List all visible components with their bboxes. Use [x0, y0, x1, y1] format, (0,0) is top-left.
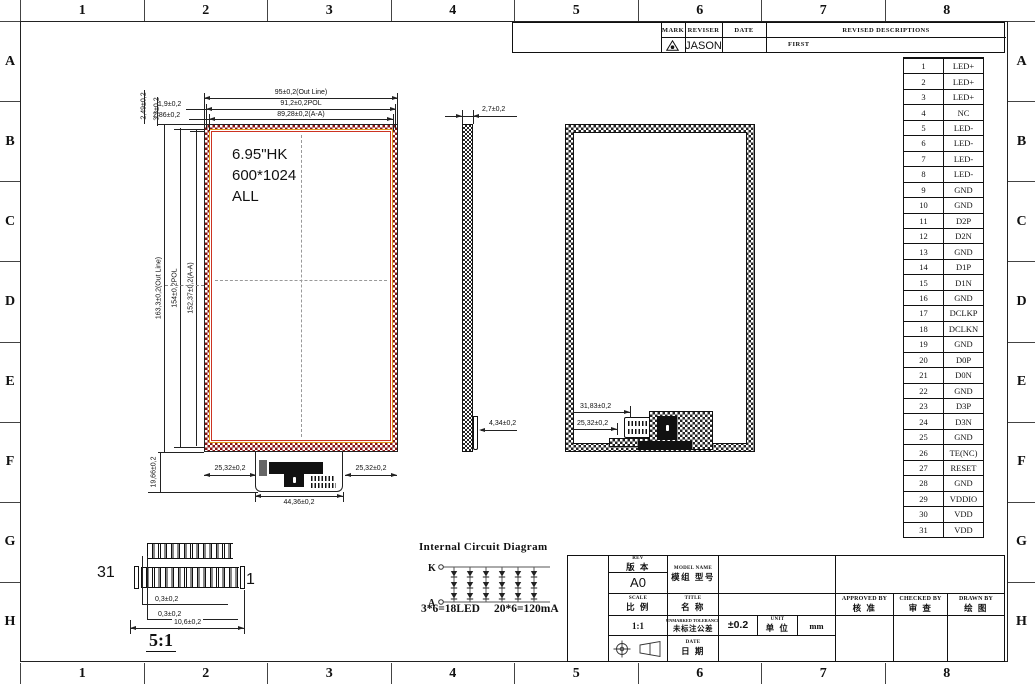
grid-row-label: F [1008, 422, 1035, 502]
grid-column-label: 7 [761, 663, 885, 684]
unit-label-cn: 单 位 [766, 622, 790, 634]
fpc-flex-mark [293, 477, 296, 483]
drawn-label-cn: 绘 图 [964, 602, 988, 614]
center-line-horizontal [215, 280, 387, 281]
back-view-interior [573, 132, 747, 444]
pin-number: 9 [904, 183, 944, 197]
arrowhead [130, 626, 136, 630]
grid-column-label: 4 [391, 663, 515, 684]
circuit-led-formula: 3*6=18LED [421, 603, 480, 615]
pin-number: 21 [904, 368, 944, 382]
pin-number: 18 [904, 322, 944, 336]
scale-value-cell: 1:1 [608, 615, 668, 636]
dimension-line [204, 98, 398, 99]
pin-row: 18 DCLKN [904, 321, 983, 336]
arrowhead [456, 114, 462, 118]
extension-line [190, 131, 204, 132]
arrowhead [238, 626, 244, 630]
detail-pin1-label: 1 [246, 571, 255, 589]
grid-column-label: 2 [144, 0, 268, 21]
screen-size-text: 6.95"HK [232, 144, 296, 165]
pin-row: 7 LED- [904, 151, 983, 166]
pin-name: LED- [944, 152, 983, 166]
pin-row: 26 TE(NC) [904, 444, 983, 459]
rev-header-cell: REV 版 本 [608, 555, 668, 573]
extension-line [617, 423, 618, 435]
pin-number: 2 [904, 74, 944, 88]
dimension-line [164, 124, 165, 452]
screen-spec-label: 6.95"HK 600*1024 ALL [232, 144, 296, 207]
pin-row: 13 GND [904, 243, 983, 258]
dim-back-offset-1: 31,83±0,2 [580, 403, 611, 411]
title-value-cell [718, 593, 836, 616]
arrowhead [479, 428, 485, 432]
approved-signature-cell [835, 615, 894, 662]
grid-row-label: D [0, 261, 20, 341]
scale-header-cell: SCALE 比 例 [608, 593, 668, 616]
grid-row-label: H [0, 582, 20, 662]
pin-number: 6 [904, 136, 944, 150]
connector-pin-stripes [628, 429, 648, 434]
approved-label-cn: 核 准 [853, 602, 877, 614]
pin-number: 1 [904, 59, 944, 73]
connector-pin-stripes [628, 421, 651, 426]
center-line-extension [165, 285, 204, 286]
pin-table: 1 LED+ 2 LED+ 3 LED+ 4 NC 5 LED- [903, 57, 984, 538]
detail-pin31-label: 31 [97, 564, 115, 582]
pin-number: 11 [904, 214, 944, 228]
grid-row-label: C [1008, 181, 1035, 261]
drawn-by-cell: DRAWN BY 绘 图 [947, 593, 1005, 616]
dimension-line [196, 130, 197, 446]
extension-line [174, 447, 204, 448]
fpc-flex-stem [284, 474, 304, 487]
pin-row: 28 GND [904, 475, 983, 490]
extension-line [393, 114, 394, 131]
revision-date-value [722, 38, 766, 53]
arrowhead [391, 473, 397, 477]
dimension-line [144, 90, 145, 124]
pin-name: RESET [944, 461, 983, 475]
pin-name: D0P [944, 353, 983, 367]
pin-number: 30 [904, 507, 944, 521]
pin-row: 9 GND [904, 182, 983, 197]
pin-name: VDD [944, 507, 983, 521]
detail-pin-row-top [147, 543, 233, 559]
grid-column-label: 7 [761, 0, 885, 21]
dim-outline-height: 163,3±0,2(Out Line) [156, 257, 163, 319]
pin-name: LED+ [944, 90, 983, 104]
dim-tab-height: 19,66±0,2 [151, 456, 158, 487]
pin-name: LED+ [944, 59, 983, 73]
detail-end-pad-left [134, 566, 139, 589]
pin-row: 12 D2N [904, 228, 983, 243]
pin-row: 14 D1P [904, 259, 983, 274]
grid-column-label: 1 [20, 663, 144, 684]
pin-row: 5 LED- [904, 120, 983, 135]
pin-name: D0N [944, 368, 983, 382]
title-header-cell: TITLE 名 称 [667, 593, 719, 616]
fpc-connector-pins [311, 476, 334, 481]
checked-label-cn: 审 查 [909, 602, 933, 614]
model-name-cell: MODEL NAME 模组 型号 [667, 555, 719, 594]
revision-col-date: DATE [722, 23, 766, 37]
circuit-title: Internal Circuit Diagram [419, 541, 548, 553]
screen-resolution-text: 600*1024 [232, 165, 296, 186]
arrowhead [611, 427, 617, 431]
tolerance-label-cn: 未标注公差 [673, 623, 713, 634]
extension-line [158, 124, 204, 125]
grid-row-label: B [0, 101, 20, 181]
pin-row: 21 D0N [904, 367, 983, 382]
fpc-tab [255, 452, 343, 492]
grid-column-label: 1 [20, 0, 144, 21]
dim-pol-height: 154±0,2POL [172, 268, 179, 307]
dim-active-height: 152,37±0,2(A-A) [188, 262, 195, 313]
arrowhead [345, 473, 351, 477]
pin-name: D3P [944, 399, 983, 413]
dim-thickness: 2,7±0,2 [482, 106, 505, 114]
pin-name: GND [944, 291, 983, 305]
rev-label-cn: 版 本 [626, 561, 650, 573]
revision-table: MARK REVISER DATE REVISED DESCRIPTIONS J… [512, 22, 1005, 53]
date-label-cn: 日 期 [681, 645, 705, 657]
grid-columns-top: 12345678 [20, 0, 1008, 21]
dimension-line [160, 452, 161, 492]
pin-number: 23 [904, 399, 944, 413]
extension-line [147, 556, 148, 620]
extension-line [158, 452, 204, 453]
pin-number: 29 [904, 492, 944, 506]
tolerance-value: ±0.2 [728, 619, 748, 631]
front-view-outline: 6.95"HK 600*1024 ALL [204, 124, 398, 452]
arrowhead [624, 410, 630, 414]
side-view-fpc [473, 416, 478, 450]
pin-name: GND [944, 337, 983, 351]
grid-row-label: F [0, 422, 20, 502]
fpc-connector-pins [311, 483, 336, 488]
grid-row-label: C [0, 181, 20, 261]
pin-row: 22 GND [904, 383, 983, 398]
grid-rows-right: ABCDEFGH [1008, 21, 1035, 662]
circuit-current-formula: 20*6=120mA [494, 603, 559, 615]
grid-column-label: 8 [885, 663, 1009, 684]
dim-connector-width: 10,6±0,2 [172, 619, 203, 627]
revision-col-mark: MARK [661, 23, 685, 37]
pin-number: 15 [904, 275, 944, 289]
pin-name: D1N [944, 275, 983, 289]
date-value-cell [718, 635, 836, 662]
extension-line [343, 492, 344, 502]
drawn-signature-cell [947, 615, 1005, 662]
dimension-line [481, 430, 517, 431]
pin-name: D2N [944, 229, 983, 243]
pin-name: DCLKN [944, 322, 983, 336]
extension-line [174, 129, 204, 130]
dimension-line [204, 475, 256, 476]
pin-number: 25 [904, 430, 944, 444]
front-view-active-area: 6.95"HK 600*1024 ALL [211, 131, 391, 441]
pin-name: D1P [944, 260, 983, 274]
pin-name: GND [944, 476, 983, 490]
dim-tab-right-offset: 25,32±0,2 [339, 465, 403, 473]
extension-line [244, 590, 245, 634]
pin-number: 26 [904, 445, 944, 459]
dimension-line [142, 604, 228, 605]
pin-number: 5 [904, 121, 944, 135]
detail-scale-label: 5:1 [146, 630, 176, 652]
pin-name: D2P [944, 214, 983, 228]
tolerance-header-cell: UNMARKED TOLERANCE 未标注公差 [667, 615, 719, 636]
pin-number: 17 [904, 306, 944, 320]
model-label-cn: 模组 型号 [671, 571, 715, 583]
dimension-line [186, 109, 206, 110]
pin-row: 15 D1N [904, 274, 983, 289]
revision-description-value: FIRST [788, 41, 810, 48]
dim-tab-left-offset: 25,32±0,2 [198, 465, 262, 473]
pin-name: LED- [944, 167, 983, 181]
grid-column-label: 5 [514, 663, 638, 684]
date-header-cell: DATE 日 期 [667, 635, 719, 662]
pin-row: 4 NC [904, 104, 983, 119]
pin-row: 17 DCLKP [904, 305, 983, 320]
pin-number: 27 [904, 461, 944, 475]
pin-row: 2 LED+ [904, 73, 983, 88]
grid-row-label: H [1008, 582, 1035, 662]
extension-line [142, 556, 143, 604]
grid-row-label: A [0, 21, 20, 101]
unit-value-cell: mm [797, 615, 836, 636]
grid-column-label: 3 [267, 663, 391, 684]
revision-triangle-icon [666, 40, 679, 51]
revision-col-description: REVISED DESCRIPTIONS [766, 23, 1006, 37]
pin-row: 11 D2P [904, 213, 983, 228]
pin-row: 16 GND [904, 290, 983, 305]
first-angle-projection-icon [610, 637, 666, 661]
grid-column-label: 3 [267, 0, 391, 21]
grid-row-label: D [1008, 261, 1035, 341]
dimension-line [189, 119, 209, 120]
arrowhead [250, 473, 256, 477]
pin-name: GND [944, 430, 983, 444]
pin-name: LED- [944, 136, 983, 150]
tolerance-value-cell: ±0.2 [718, 615, 758, 636]
dim-pol-offset: 1,9±0,2 [158, 101, 181, 109]
pin-row: 24 D3N [904, 413, 983, 428]
pin-number: 19 [904, 337, 944, 351]
pin-number: 7 [904, 152, 944, 166]
revision-reviser-value: JASON [685, 38, 722, 53]
pin-number: 10 [904, 198, 944, 212]
pin-row: 31 VDD [904, 522, 983, 537]
pin-row: 6 LED- [904, 135, 983, 150]
pin-name: NC [944, 105, 983, 119]
extension-line [148, 492, 258, 493]
back-flex-mark [666, 425, 669, 431]
dim-fpc-thickness: 4,34±0,2 [489, 420, 516, 428]
dimension-line [573, 412, 630, 413]
pin-name: GND [944, 198, 983, 212]
pin-number: 12 [904, 229, 944, 243]
pin-name: TE(NC) [944, 445, 983, 459]
pin-name: VDD [944, 523, 983, 537]
grid-row-label: A [1008, 21, 1035, 101]
pin-number: 31 [904, 523, 944, 537]
approved-by-cell: APPROVED BY 核 准 [835, 593, 894, 616]
dim-tab-width: 44,36±0,2 [255, 499, 343, 507]
pin-name: LED- [944, 121, 983, 135]
grid-column-label: 6 [638, 0, 762, 21]
pin-number: 14 [904, 260, 944, 274]
dimension-line [209, 119, 393, 120]
pin-name: DCLKP [944, 306, 983, 320]
rev-value-cell: A0 [608, 572, 668, 594]
back-flex-stem [657, 416, 677, 440]
arrowhead [255, 494, 261, 498]
scale-value: 1:1 [632, 621, 644, 631]
grid-column-label: 6 [638, 663, 762, 684]
pin-name: LED+ [944, 74, 983, 88]
extension-line [462, 110, 463, 124]
rev-value: A0 [630, 576, 646, 591]
pin-row: 30 VDD [904, 506, 983, 521]
pin-name: GND [944, 244, 983, 258]
pin-row: 25 GND [904, 429, 983, 444]
projection-symbol-cell [608, 635, 668, 662]
dim-back-offset-2: 25,32±0,2 [577, 420, 608, 428]
pin-name: D3N [944, 414, 983, 428]
pin-number: 3 [904, 90, 944, 104]
grid-row-label: G [0, 502, 20, 582]
center-line-vertical [301, 135, 302, 437]
pin-number: 16 [904, 291, 944, 305]
pin-number: 4 [904, 105, 944, 119]
arrowhead [473, 114, 479, 118]
pin-number: 24 [904, 414, 944, 428]
dim-pol-width: 91,2±0,2POL [206, 100, 396, 108]
grid-rows-left: ABCDEFGH [0, 21, 20, 662]
pin-number: 22 [904, 384, 944, 398]
screen-note-text: ALL [232, 186, 296, 207]
dimension-line [255, 496, 343, 497]
pin-row: 1 LED+ [904, 58, 983, 73]
pin-name: VDDIO [944, 492, 983, 506]
grid-row-label: B [1008, 101, 1035, 181]
scale-label-cn: 比 例 [626, 601, 650, 613]
grid-row-label: G [1008, 502, 1035, 582]
pin-row: 8 LED- [904, 166, 983, 181]
pin-row: 27 RESET [904, 460, 983, 475]
arrowhead [337, 494, 343, 498]
extension-line [630, 406, 631, 418]
grid-column-label: 5 [514, 0, 638, 21]
circuit-cathode-label: K [428, 563, 436, 574]
dimension-line [180, 128, 181, 448]
dimension-line [130, 628, 244, 629]
title-label-cn: 名 称 [681, 601, 705, 613]
pin-row: 10 GND [904, 197, 983, 212]
engineering-drawing-sheet: 12345678 12345678 ABCDEFGH ABCDEFGH MARK… [0, 0, 1035, 684]
front-view-polarizer: 6.95"HK 600*1024 ALL [209, 129, 393, 443]
pin-row: 29 VDDIO [904, 491, 983, 506]
unit-header-cell: UNIT 单 位 [757, 615, 798, 636]
pin-row: 23 D3P [904, 398, 983, 413]
title-block-empty-top-right [835, 555, 1005, 594]
checked-signature-cell [893, 615, 948, 662]
detail-end-pad-right [240, 566, 245, 589]
grid-column-label: 4 [391, 0, 515, 21]
grid-row-label: E [1008, 342, 1035, 422]
detail-pin-row-bottom [141, 567, 239, 588]
grid-row-label: E [0, 342, 20, 422]
circuit-diagram: K A [424, 554, 564, 610]
grid-columns-bottom: 12345678 [20, 663, 1008, 684]
back-flex-bar [638, 441, 692, 450]
dim-pin-width-1: 0,3±0,2 [155, 596, 178, 604]
model-value-cell [718, 555, 836, 594]
pin-number: 20 [904, 353, 944, 367]
pin-name: GND [944, 183, 983, 197]
grid-column-label: 2 [144, 663, 268, 684]
pin-number: 13 [904, 244, 944, 258]
title-block-spacer-cell [567, 555, 609, 662]
side-view-body [462, 124, 473, 452]
pin-number: 8 [904, 167, 944, 181]
arrowhead [204, 473, 210, 477]
fpc-flex-bar [269, 462, 323, 474]
revision-col-reviser: REVISER [685, 23, 722, 37]
pin-row: 20 D0P [904, 352, 983, 367]
pin-row: 3 LED+ [904, 89, 983, 104]
pin-name: GND [944, 384, 983, 398]
dim-active-width: 89,28±0,2(A-A) [209, 111, 393, 119]
dimension-line [345, 475, 397, 476]
pin-number: 28 [904, 476, 944, 490]
dimension-line [157, 97, 158, 126]
unit-value: mm [809, 621, 823, 631]
grid-column-label: 8 [885, 0, 1009, 21]
dim-outline-width: 95±0,2(Out Line) [204, 89, 398, 97]
pin-row: 19 GND [904, 336, 983, 351]
checked-by-cell: CHECKED BY 审 查 [893, 593, 948, 616]
